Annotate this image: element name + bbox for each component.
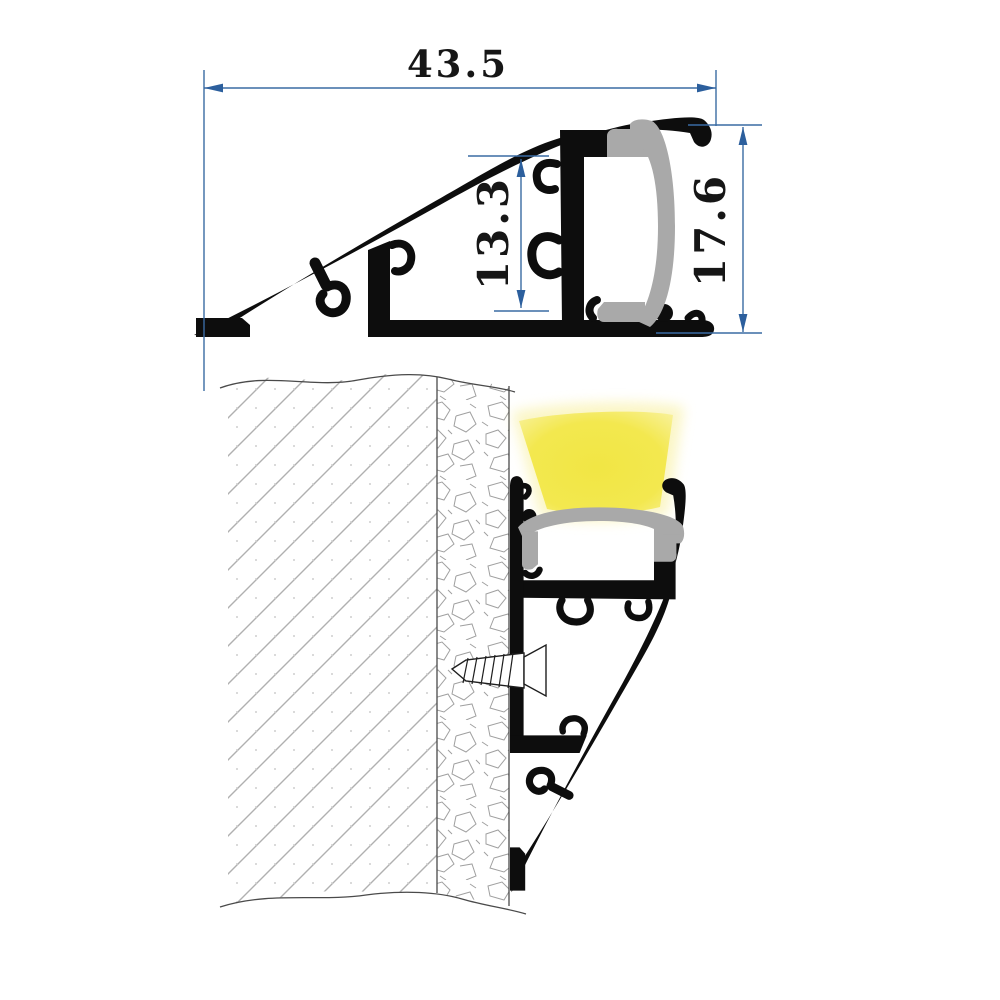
installation-section-view — [220, 373, 686, 914]
dimension-label-overall-height: 17.6 — [688, 145, 734, 315]
technical-drawing-canvas: 43.5 13.3 17.6 — [0, 0, 1000, 1000]
plaster-layer — [437, 377, 509, 906]
dimension-label-width: 43.5 — [368, 42, 548, 86]
wall-section — [220, 373, 526, 914]
led-glow — [512, 402, 684, 522]
dimension-label-inner-height: 13.3 — [471, 148, 517, 318]
profile-outline — [194, 117, 714, 337]
